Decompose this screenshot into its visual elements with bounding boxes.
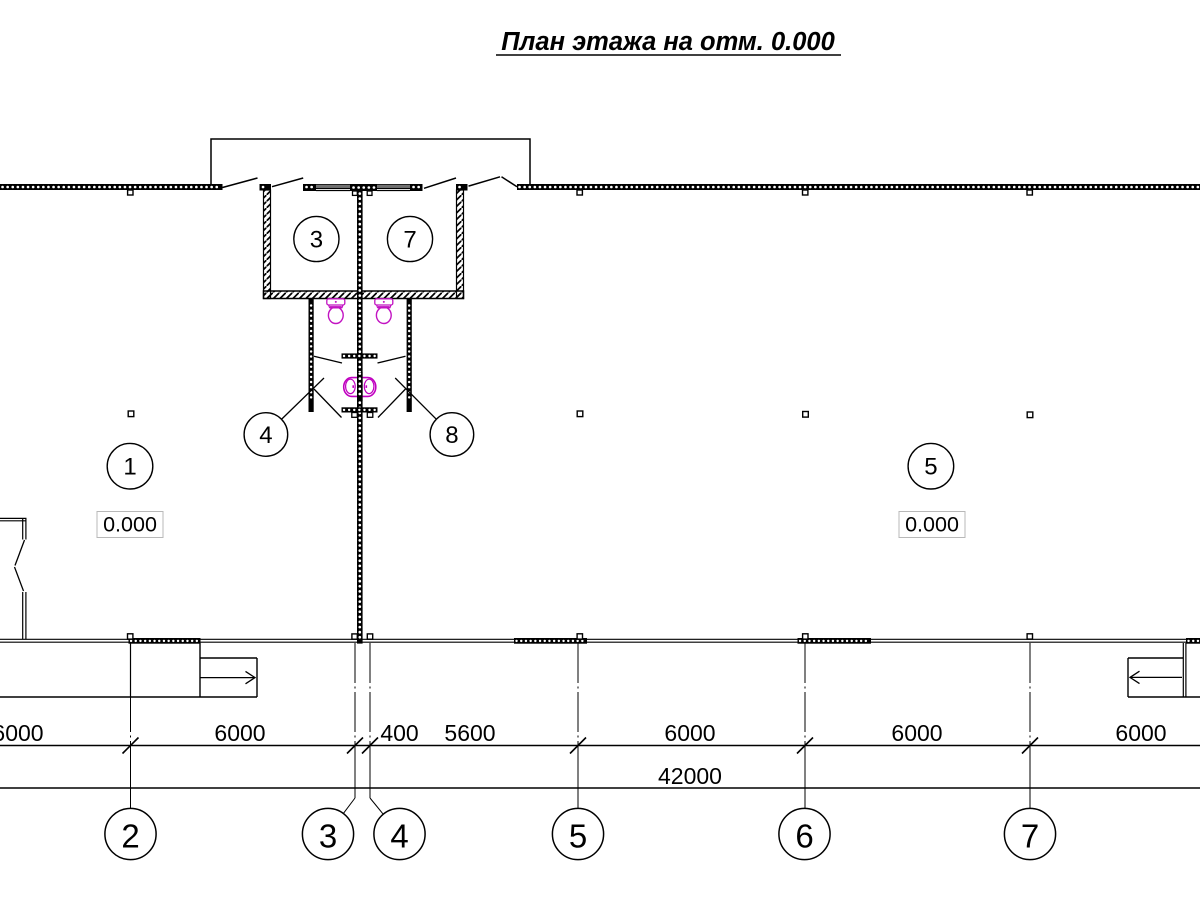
svg-text:5: 5 xyxy=(924,454,937,481)
svg-text:5600: 5600 xyxy=(444,720,495,746)
svg-text:400: 400 xyxy=(380,720,418,746)
svg-text:4: 4 xyxy=(259,422,272,449)
svg-text:5: 5 xyxy=(569,818,587,855)
svg-text:0.000: 0.000 xyxy=(103,513,157,537)
svg-text:7: 7 xyxy=(403,227,416,254)
svg-text:6000: 6000 xyxy=(214,720,265,746)
svg-text:3: 3 xyxy=(319,818,337,855)
svg-text:3: 3 xyxy=(310,227,323,254)
svg-text:2: 2 xyxy=(121,818,139,855)
svg-text:План этажа на отм. 0.000: План этажа на отм. 0.000 xyxy=(501,28,835,56)
svg-text:42000: 42000 xyxy=(658,763,722,789)
svg-text:0.000: 0.000 xyxy=(905,513,959,537)
svg-text:8: 8 xyxy=(445,422,458,449)
svg-text:6000: 6000 xyxy=(0,720,44,746)
svg-text:6000: 6000 xyxy=(664,720,715,746)
svg-text:7: 7 xyxy=(1021,818,1039,855)
svg-text:4: 4 xyxy=(390,818,408,855)
svg-text:6000: 6000 xyxy=(1115,720,1166,746)
svg-text:6: 6 xyxy=(795,818,813,855)
svg-text:6000: 6000 xyxy=(891,720,942,746)
svg-text:1: 1 xyxy=(123,454,136,481)
